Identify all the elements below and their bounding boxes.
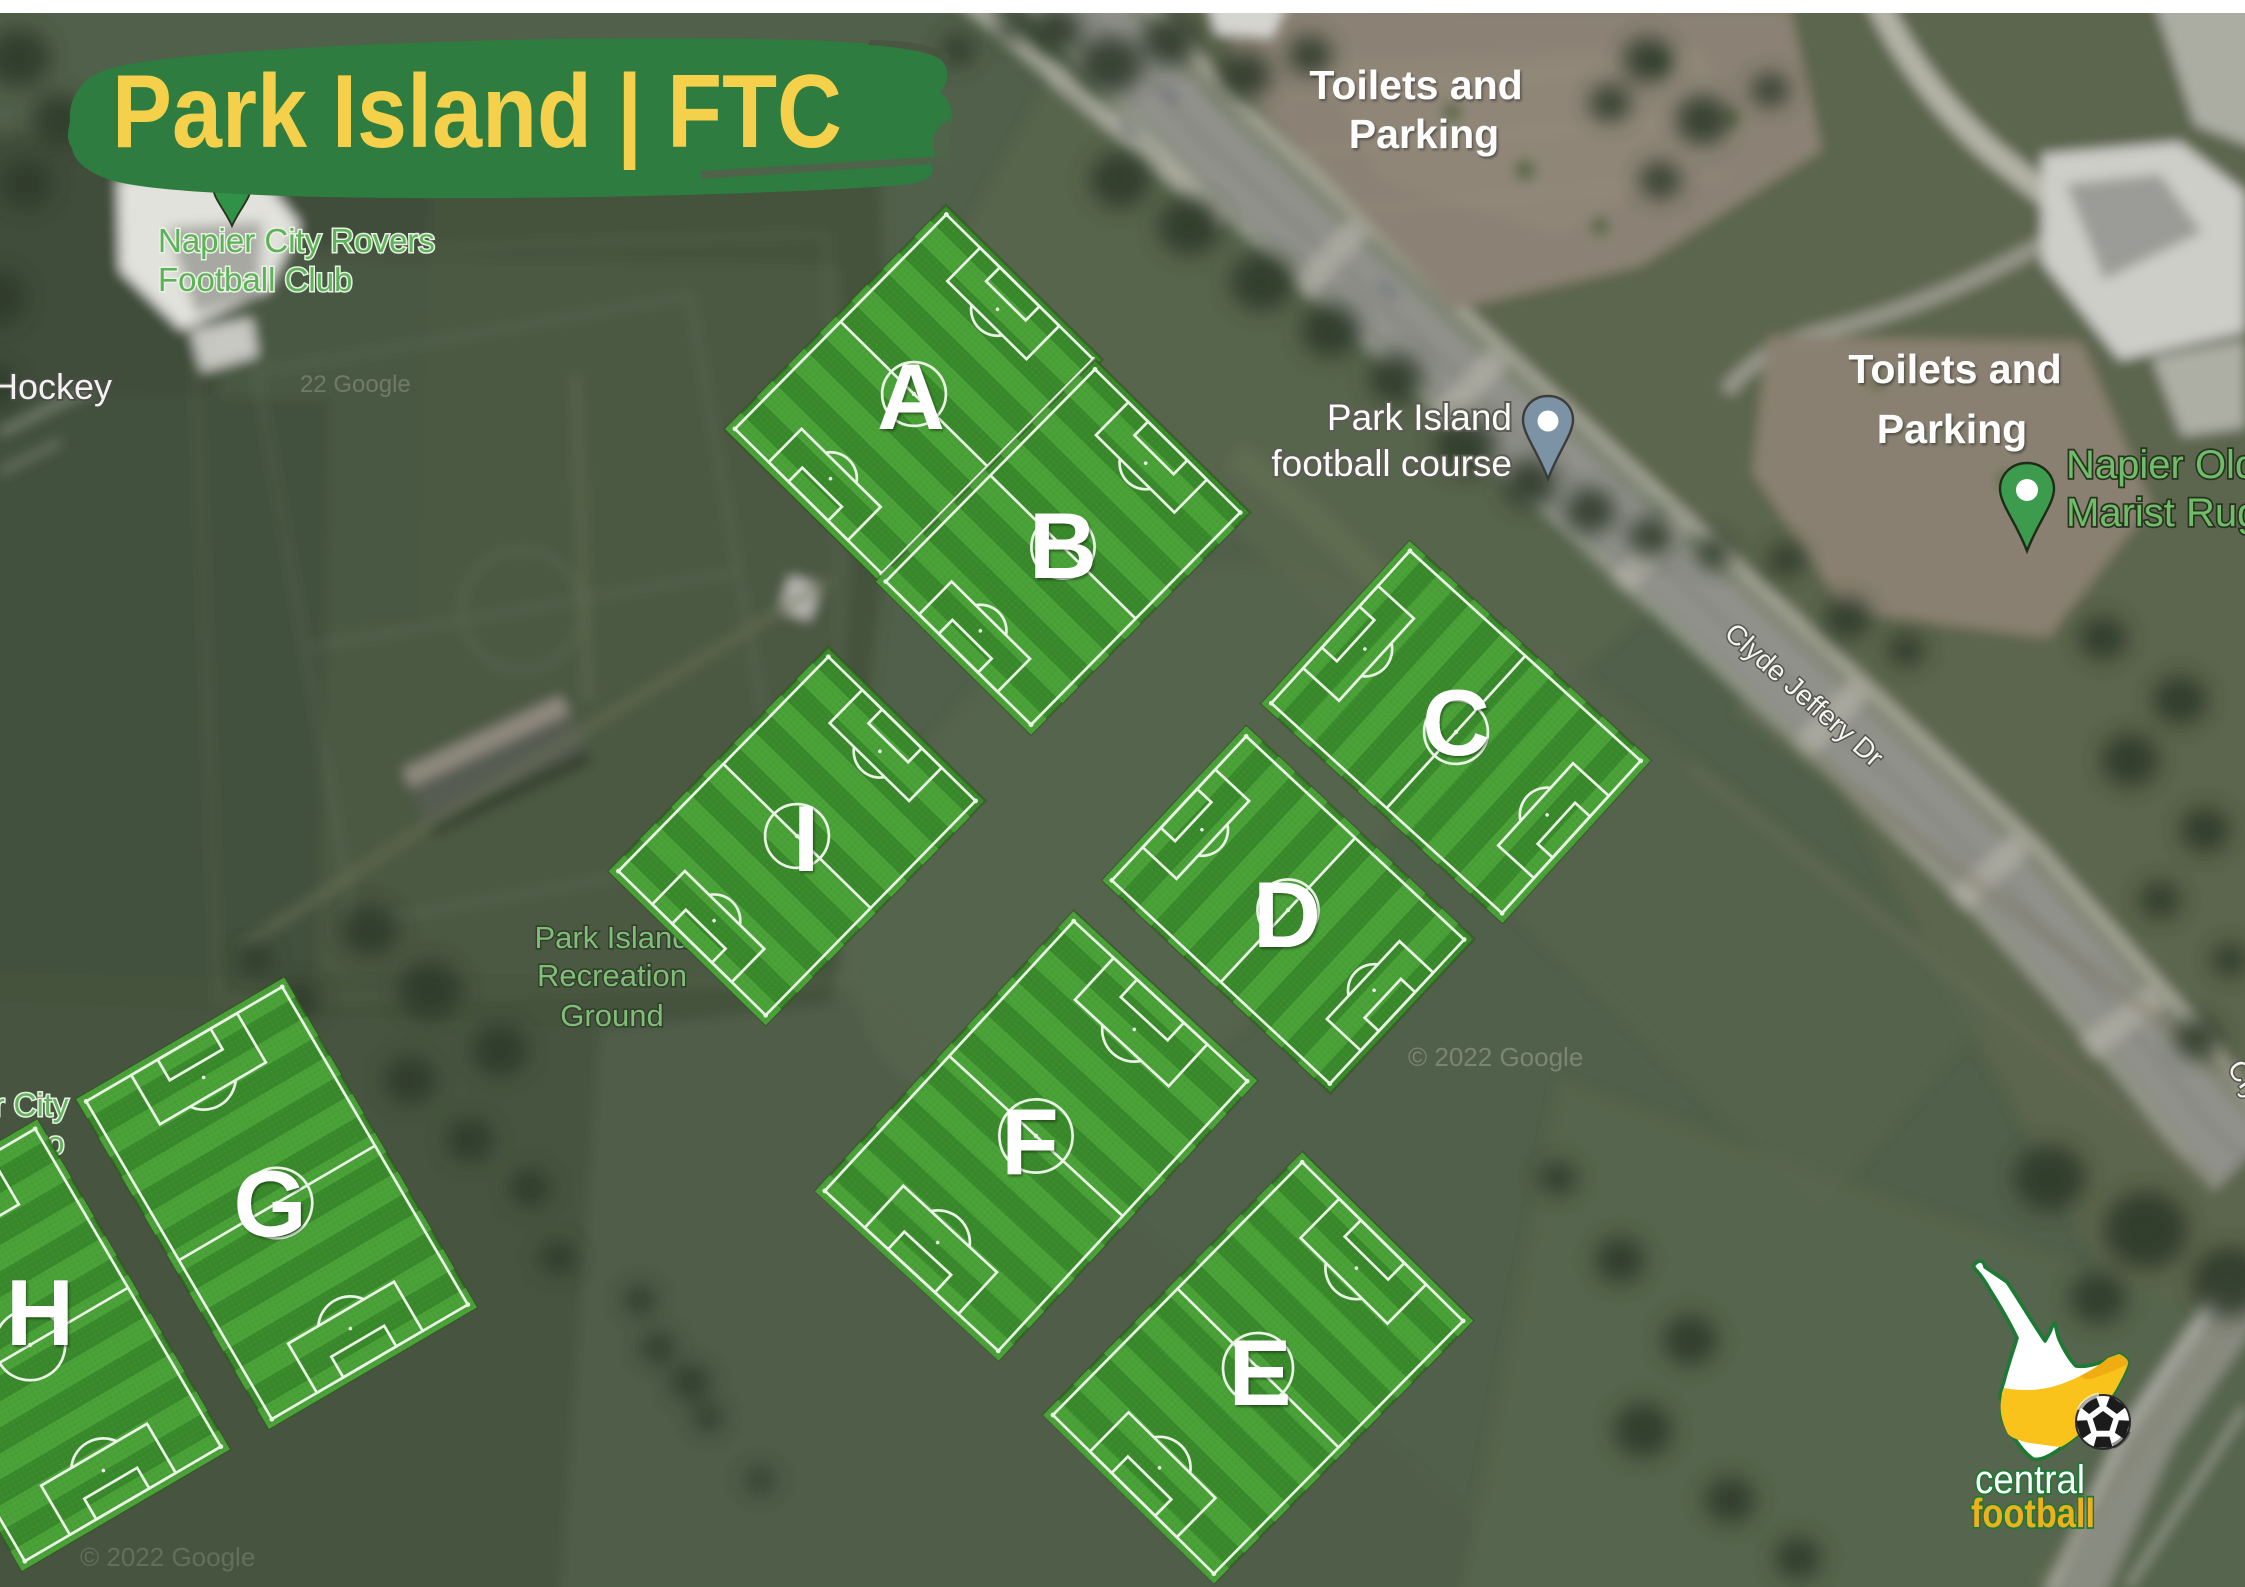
svg-text:Football Club: Football Club <box>158 261 352 298</box>
svg-text:Ground: Ground <box>560 998 663 1033</box>
svg-text:E: E <box>1229 1320 1292 1425</box>
svg-text:22 Google: 22 Google <box>300 371 411 398</box>
svg-text:Marist Rug: Marist Rug <box>2066 491 2245 535</box>
svg-text:Toilets and: Toilets and <box>1848 346 2061 392</box>
svg-text:Toilets and: Toilets and <box>1309 62 1522 108</box>
svg-text:H: H <box>6 1260 74 1365</box>
svg-text:Park Island: Park Island <box>1327 397 1512 438</box>
svg-text:© 2022 Google: © 2022 Google <box>1408 1042 1583 1072</box>
svg-text:G: G <box>233 1151 306 1256</box>
svg-text:F: F <box>1001 1089 1058 1194</box>
svg-text:D: D <box>1253 862 1321 967</box>
svg-text:Parking: Parking <box>1877 406 2027 452</box>
svg-text:r City: r City <box>0 1087 69 1123</box>
svg-text:Napier City Rovers: Napier City Rovers <box>158 222 435 259</box>
svg-text:Parking: Parking <box>1349 111 1499 157</box>
svg-text:Hockey: Hockey <box>0 366 112 407</box>
svg-text:football course: football course <box>1271 443 1512 484</box>
svg-text:A: A <box>877 344 945 449</box>
svg-text:I: I <box>793 786 819 891</box>
svg-text:Recreation: Recreation <box>537 958 687 993</box>
svg-text:© 2022 Google: © 2022 Google <box>80 1542 255 1572</box>
svg-text:C: C <box>1422 670 1490 775</box>
svg-text:Park Island | FTC: Park Island | FTC <box>112 54 842 171</box>
svg-text:football: football <box>1971 1490 2095 1536</box>
svg-text:Napier Old: Napier Old <box>2066 443 2245 487</box>
svg-text:B: B <box>1029 493 1097 598</box>
